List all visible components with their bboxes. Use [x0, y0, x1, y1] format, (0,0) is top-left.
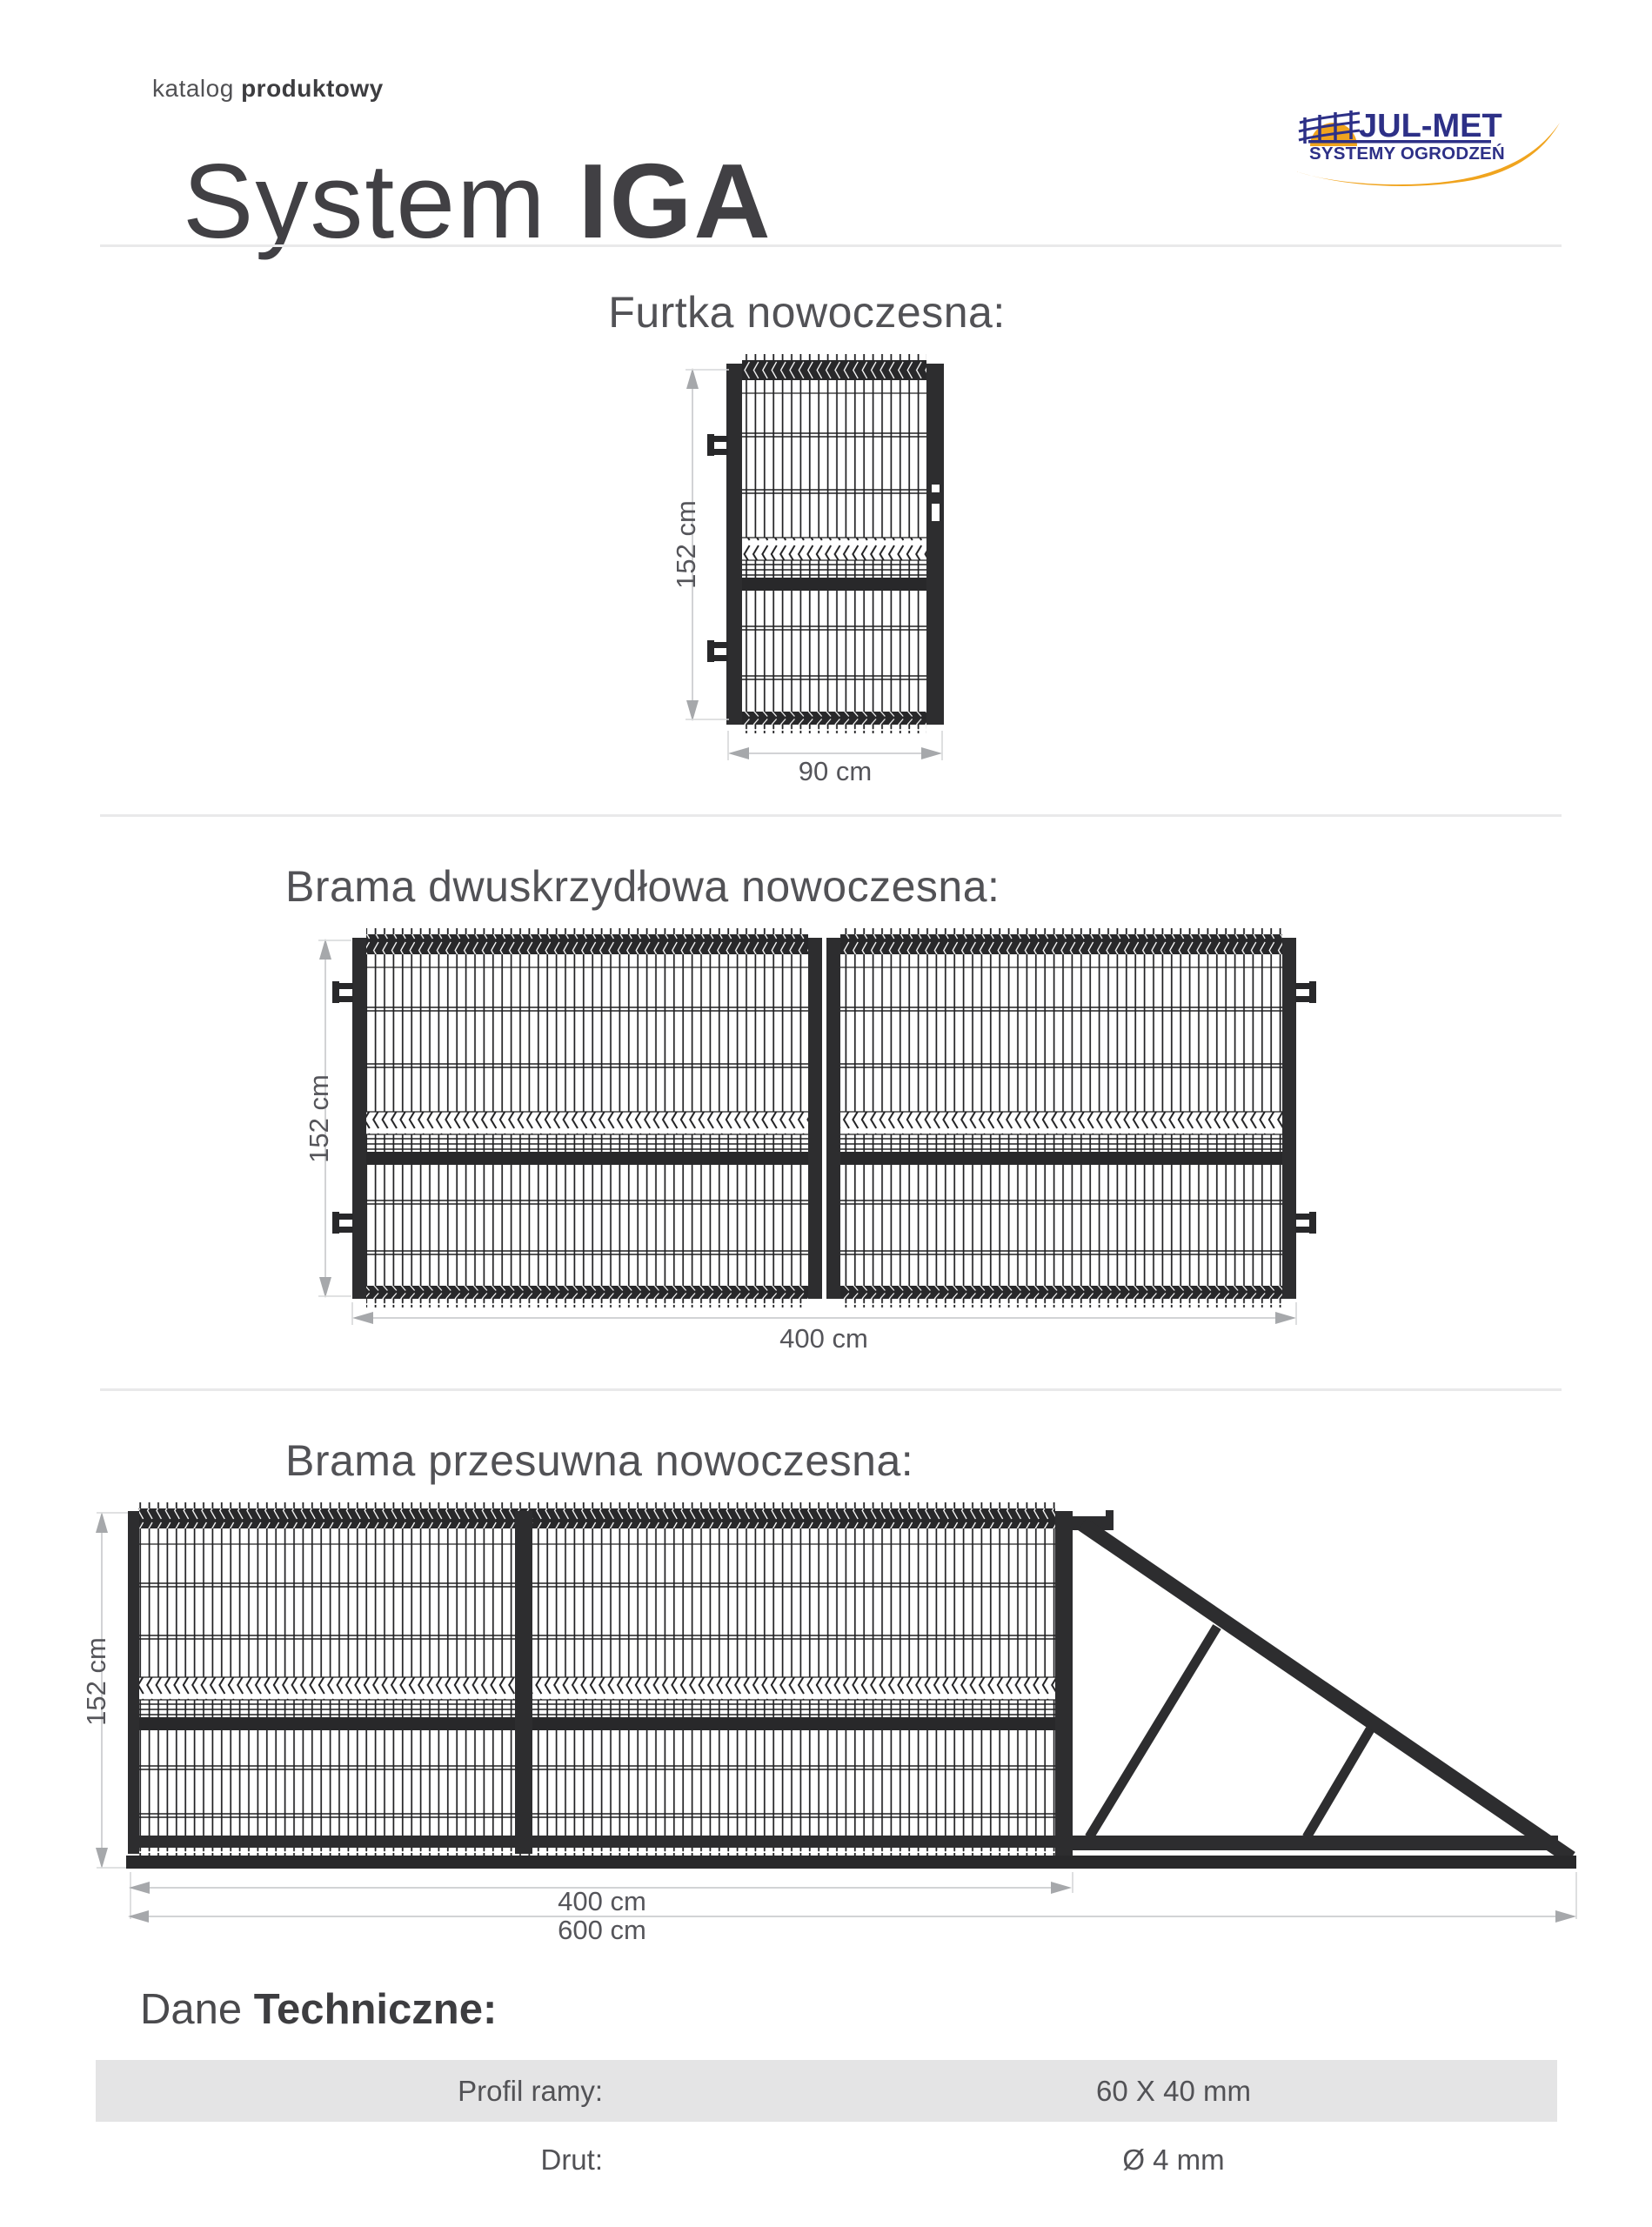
divider — [100, 244, 1562, 247]
dim-label-height: 152 cm — [671, 500, 701, 589]
counterbalance-triangle — [1073, 1510, 1571, 1858]
dim-label-width: 90 cm — [799, 756, 872, 786]
tech-heading-bold: Techniczne: — [254, 1986, 498, 2033]
catalog-page: katalog produktowy System IGA JUL-MET SY… — [0, 0, 1652, 2227]
catalog-kicker: katalog produktowy — [152, 75, 384, 103]
tech-row-value: 60 X 40 mm — [860, 2060, 1487, 2122]
gate-leaf-left — [352, 928, 822, 1307]
gate-leaf — [707, 354, 944, 733]
gate-leaf-right — [826, 928, 1296, 1307]
tech-row-label: Profil ramy: — [96, 2060, 603, 2122]
tech-heading: Dane Techniczne: — [140, 1985, 497, 2034]
brama-przesuwna-drawing: 152 cm 400 cm 600 cm — [52, 1479, 1635, 1966]
hinges-right — [1295, 981, 1316, 1234]
dimension-height: 152 cm — [304, 939, 351, 1298]
page-title-light: System — [183, 142, 547, 260]
sliding-gate-body — [128, 1502, 1073, 1869]
hinges-left — [332, 981, 353, 1234]
divider — [100, 814, 1562, 817]
divider — [100, 1388, 1562, 1391]
hinge-top — [707, 434, 728, 456]
dim-label-height: 152 cm — [304, 1074, 334, 1163]
section-title-furtka: Furtka nowoczesna: — [0, 287, 1614, 338]
tech-heading-light: Dane — [140, 1986, 242, 2033]
dim-label-width-total: 600 cm — [558, 1915, 646, 1945]
logo-underline — [1308, 140, 1491, 144]
dim-label-width: 400 cm — [779, 1323, 868, 1354]
ground-rail — [126, 1856, 1576, 1869]
brama-dwuskrzydlowa-drawing: 152 cm 400 cm — [278, 905, 1392, 1392]
dimension-width-gate: 400 cm — [129, 1872, 1576, 1919]
table-row: Drut: Ø 4 mm — [96, 2129, 1557, 2190]
logo-tagline: SYSTEMY OGRODZEŃ — [1309, 144, 1505, 164]
dimension-height: 152 cm — [81, 1512, 128, 1869]
page-title-bold: IGA — [579, 142, 772, 260]
dimension-width: 90 cm — [728, 731, 942, 786]
page-title: System IGA — [183, 148, 772, 254]
hinge-bottom — [707, 640, 728, 662]
julmet-logo: JUL-MET SYSTEMY OGRODZEŃ — [1287, 91, 1575, 231]
tech-row-label: Drut: — [96, 2129, 603, 2190]
furtka-drawing: 152 cm 90 cm — [644, 344, 1009, 805]
table-row: Profil ramy: 60 X 40 mm — [96, 2060, 1557, 2122]
dim-label-width-gate: 400 cm — [558, 1886, 646, 1916]
dimension-width: 400 cm — [352, 1302, 1296, 1354]
dim-label-height: 152 cm — [81, 1637, 111, 1726]
logo-name: JUL-MET — [1359, 108, 1502, 144]
dimension-width-total: 600 cm — [128, 1910, 1576, 1945]
kicker-bold: produktowy — [241, 75, 384, 102]
kicker-light: katalog — [152, 75, 234, 102]
dimension-height: 152 cm — [671, 368, 729, 721]
tech-row-value: Ø 4 mm — [860, 2129, 1487, 2190]
